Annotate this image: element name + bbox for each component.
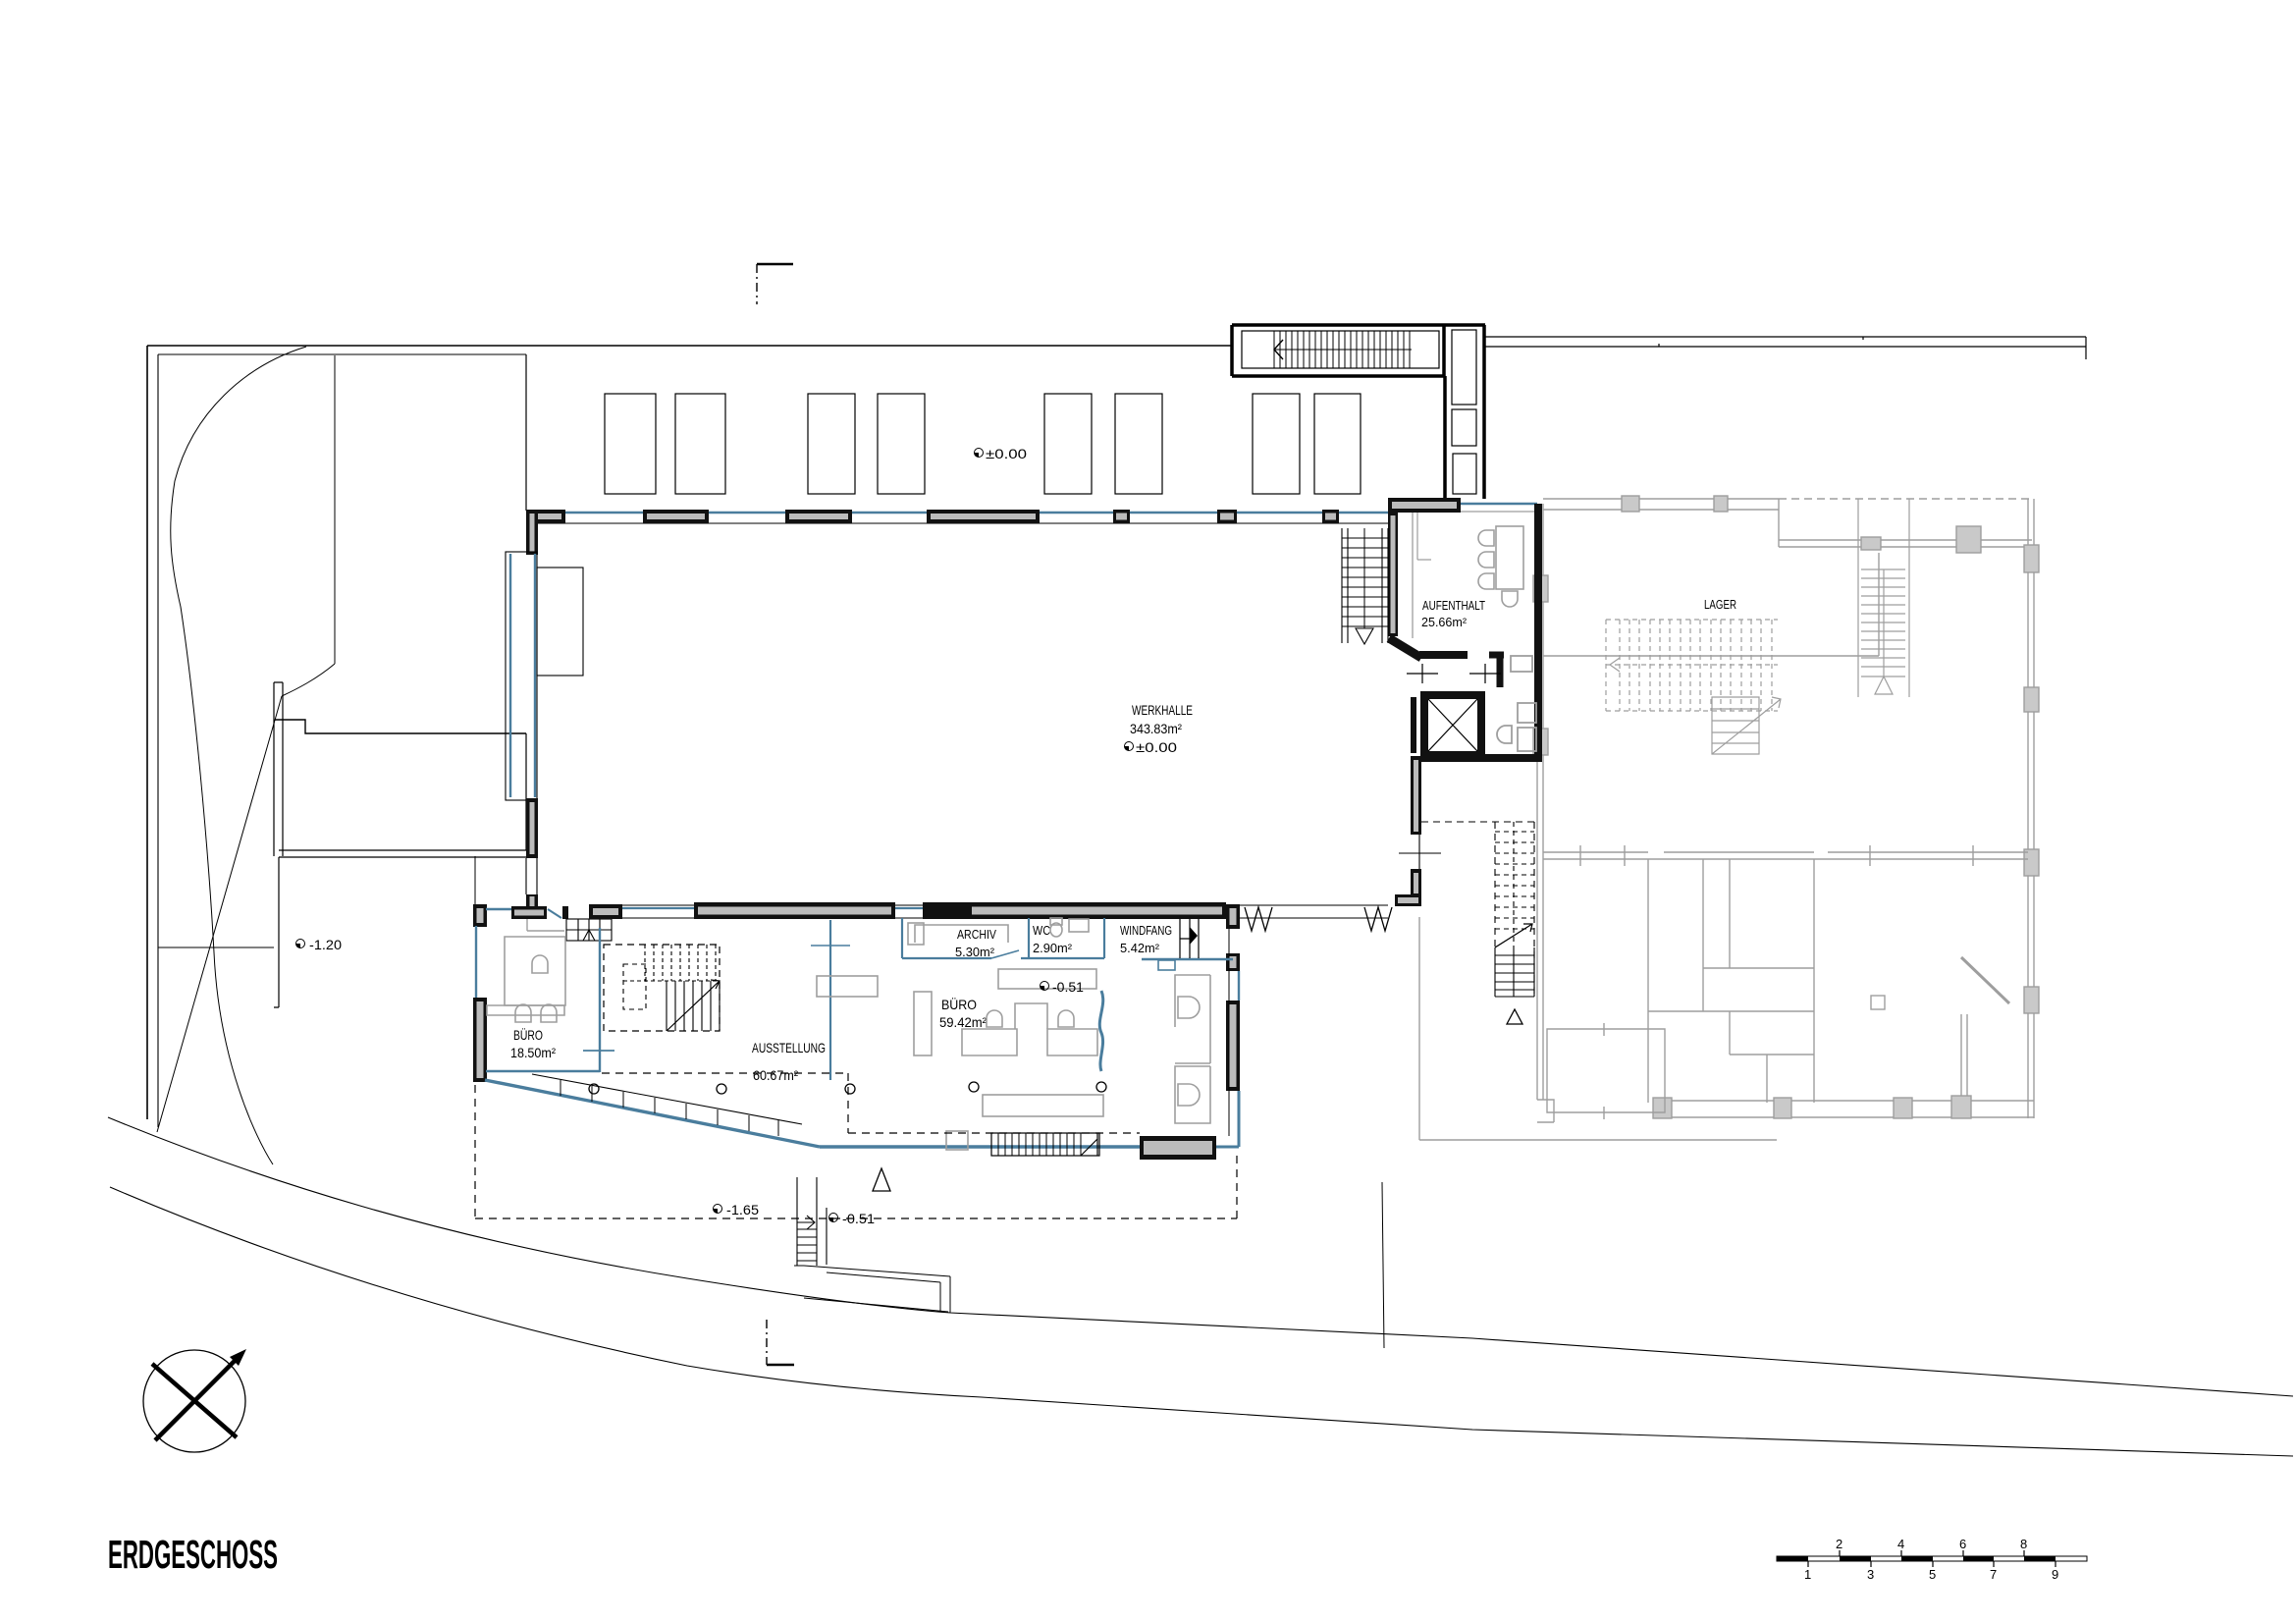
svg-text:AUSSTELLUNG: AUSSTELLUNG	[752, 1040, 826, 1055]
svg-text:±0.00: ±0.00	[1136, 739, 1177, 755]
svg-text:BÜRO: BÜRO	[941, 996, 977, 1012]
svg-text:4: 4	[1897, 1537, 1904, 1551]
svg-text:3: 3	[1867, 1567, 1874, 1582]
svg-text:5.42m²: 5.42m²	[1120, 941, 1160, 955]
svg-text:BÜRO: BÜRO	[513, 1026, 543, 1043]
svg-text:6: 6	[1959, 1537, 1966, 1551]
svg-text:WC: WC	[1033, 923, 1050, 938]
svg-text:7: 7	[1990, 1567, 1997, 1582]
svg-text:WERKHALLE: WERKHALLE	[1132, 703, 1193, 718]
svg-text:8: 8	[2020, 1537, 2027, 1551]
svg-text:2: 2	[1836, 1537, 1842, 1551]
svg-text:ARCHIV: ARCHIV	[957, 927, 996, 942]
svg-text:343.83m²: 343.83m²	[1130, 722, 1182, 736]
svg-text:60.67m²: 60.67m²	[753, 1067, 798, 1083]
svg-text:WINDFANG: WINDFANG	[1120, 923, 1172, 938]
svg-text:2.90m²: 2.90m²	[1033, 941, 1073, 955]
svg-text:-0.51: -0.51	[842, 1211, 875, 1226]
svg-text:-1.20: -1.20	[309, 937, 342, 952]
svg-text:1: 1	[1804, 1567, 1811, 1582]
svg-text:ERDGESCHOSS: ERDGESCHOSS	[108, 1532, 278, 1577]
svg-text:LAGER: LAGER	[1704, 597, 1736, 612]
svg-text:59.42m²: 59.42m²	[939, 1014, 987, 1030]
svg-text:AUFENTHALT: AUFENTHALT	[1422, 598, 1485, 613]
svg-text:25.66m²: 25.66m²	[1421, 615, 1468, 629]
svg-text:±0.00: ±0.00	[986, 446, 1027, 461]
svg-text:-1.65: -1.65	[726, 1202, 759, 1217]
svg-text:5.30m²: 5.30m²	[955, 945, 995, 959]
svg-text:5: 5	[1929, 1567, 1936, 1582]
svg-text:-0.51: -0.51	[1052, 979, 1084, 995]
svg-text:18.50m²: 18.50m²	[510, 1045, 556, 1060]
svg-text:9: 9	[2052, 1567, 2058, 1582]
